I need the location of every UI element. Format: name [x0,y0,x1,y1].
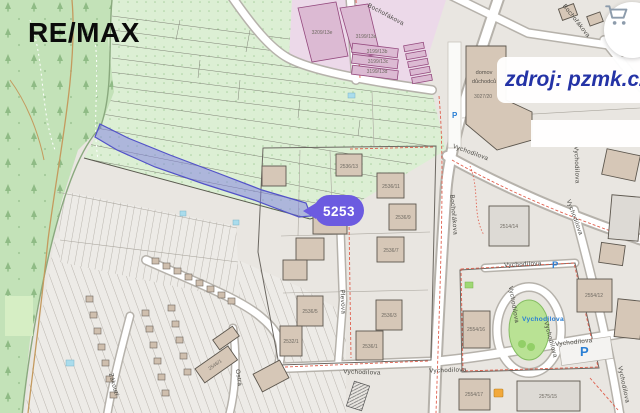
building-label: 2532/1 [283,339,299,345]
building-label: 2536/11 [382,184,400,190]
building-label: 2575/15 [539,394,557,400]
parking-icon-1: P [452,111,458,120]
building-label: 3199/13d [367,69,388,75]
parcel-marker-number: 5253 [323,204,355,219]
building-label: 2536/13 [340,164,358,170]
parking-icon-3: P [580,344,589,359]
source-watermark-text: zdroj: pzmk.cz [505,68,640,92]
transit-stop-icon [494,389,503,397]
meadow-field [5,296,33,336]
street-label-vychodilova-7: Vychodilova [343,368,381,376]
building-label: 3199/13c [368,59,389,65]
parking-strip [448,42,461,148]
source-watermark: zdroj: pzmk.cz [497,57,640,103]
retirement-home-label-2: důchodců [472,78,496,85]
retirement-home-number: 3027/20 [474,94,492,100]
cart-icon [604,2,630,28]
watermark-band [531,120,640,147]
building-label: 3199/13b [367,49,388,55]
retirement-home-label-1: domov [476,70,493,76]
building-label: 2554/16 [467,327,485,333]
building-label: 2536/1 [362,344,378,350]
building-label: 2536/5 [302,309,318,315]
street-label-vychodilova-blue: Vychodilova [522,316,564,323]
street-label-plevova: Plevova [338,289,346,314]
remax-logo: RE/MAX [28,17,140,49]
building-label: 3199/13a [356,34,377,40]
street-label-vychodilova-2: Vychodilova [572,146,580,184]
building-label: 2536/7 [383,248,399,254]
building-label: 2554/12 [585,293,603,299]
building-label: 3209/13e [312,30,333,36]
parking-icon-2: P [552,260,559,271]
building-label: 2536/9 [395,215,411,221]
cadastral-map-screenshot: Bochořákova Bochořákova Bochořákova Vych… [0,0,640,413]
building-label: 2514/14 [500,224,518,230]
building-label: 2554/17 [465,392,483,398]
building-label: 2536/3 [381,313,397,319]
street-label-vychodilova-8: Vychodilova [429,366,467,374]
